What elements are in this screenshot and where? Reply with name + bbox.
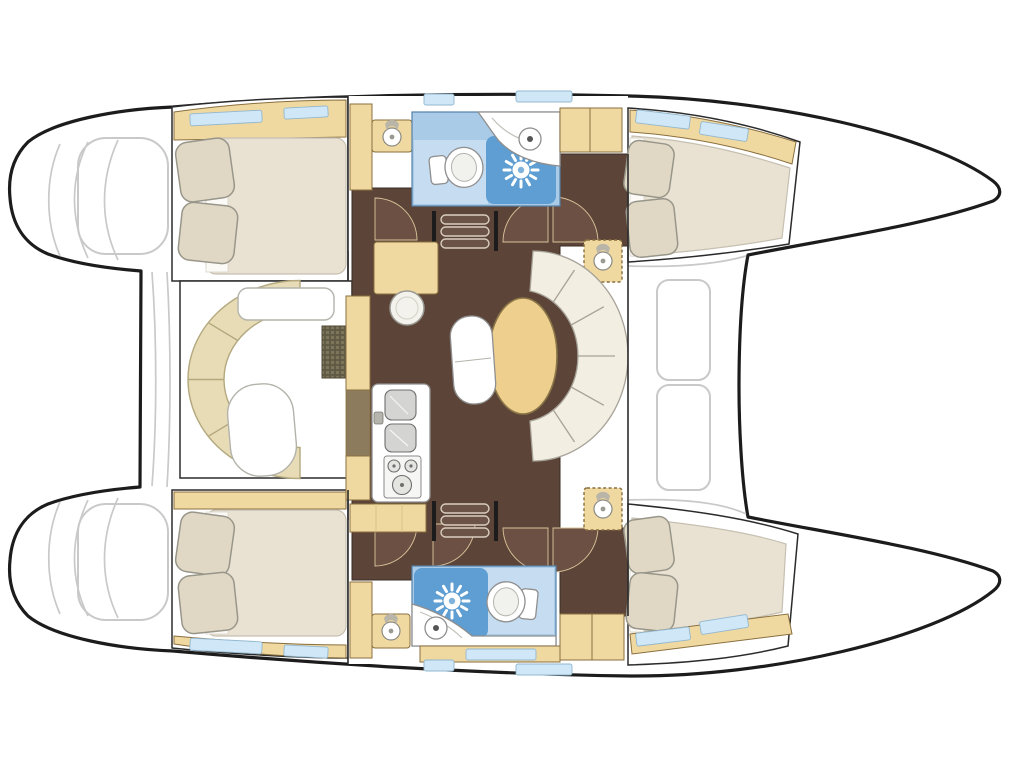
pillow (177, 571, 239, 635)
hull-window (284, 645, 329, 658)
galley-counter-aft (350, 504, 426, 532)
pillow (174, 137, 236, 204)
shelf-strip (174, 492, 346, 509)
washbasin-icon (594, 244, 612, 270)
wardrobe (350, 582, 372, 658)
wardrobe (560, 108, 622, 152)
chart-table (374, 242, 438, 294)
pillow (177, 201, 239, 265)
side-console (238, 288, 334, 320)
stool (390, 291, 424, 325)
deck-window (424, 660, 454, 671)
deck-window (424, 94, 454, 105)
washbasin-icon (383, 120, 401, 146)
galley-sink (385, 390, 416, 420)
pillow (622, 515, 675, 575)
floor-plan-drawing (0, 0, 1024, 768)
port-companionway-steps (432, 211, 498, 251)
coffee-table (225, 381, 299, 478)
pillow (622, 139, 675, 199)
wardrobe (350, 104, 372, 190)
galley-faucet (374, 412, 383, 424)
aft-port-cabin-interior (174, 100, 346, 274)
galley-cabinet (346, 390, 370, 456)
starboard-companionway-steps (432, 501, 498, 541)
deck-window (516, 664, 572, 675)
aft-starboard-cabin-interior (174, 492, 346, 658)
pillow (625, 198, 679, 259)
catamaran-floor-plan (0, 0, 1024, 768)
hull-window (466, 649, 536, 660)
pillow (625, 572, 679, 633)
galley-sink (385, 424, 416, 452)
hull-window (284, 106, 329, 119)
galley-cabinet (346, 296, 370, 390)
washbasin-icon (382, 614, 400, 640)
galley-cabinet (346, 456, 370, 500)
dinette-table (489, 298, 557, 414)
pillow (174, 511, 236, 578)
washbasin-icon (594, 492, 612, 518)
deck-window (516, 91, 572, 102)
